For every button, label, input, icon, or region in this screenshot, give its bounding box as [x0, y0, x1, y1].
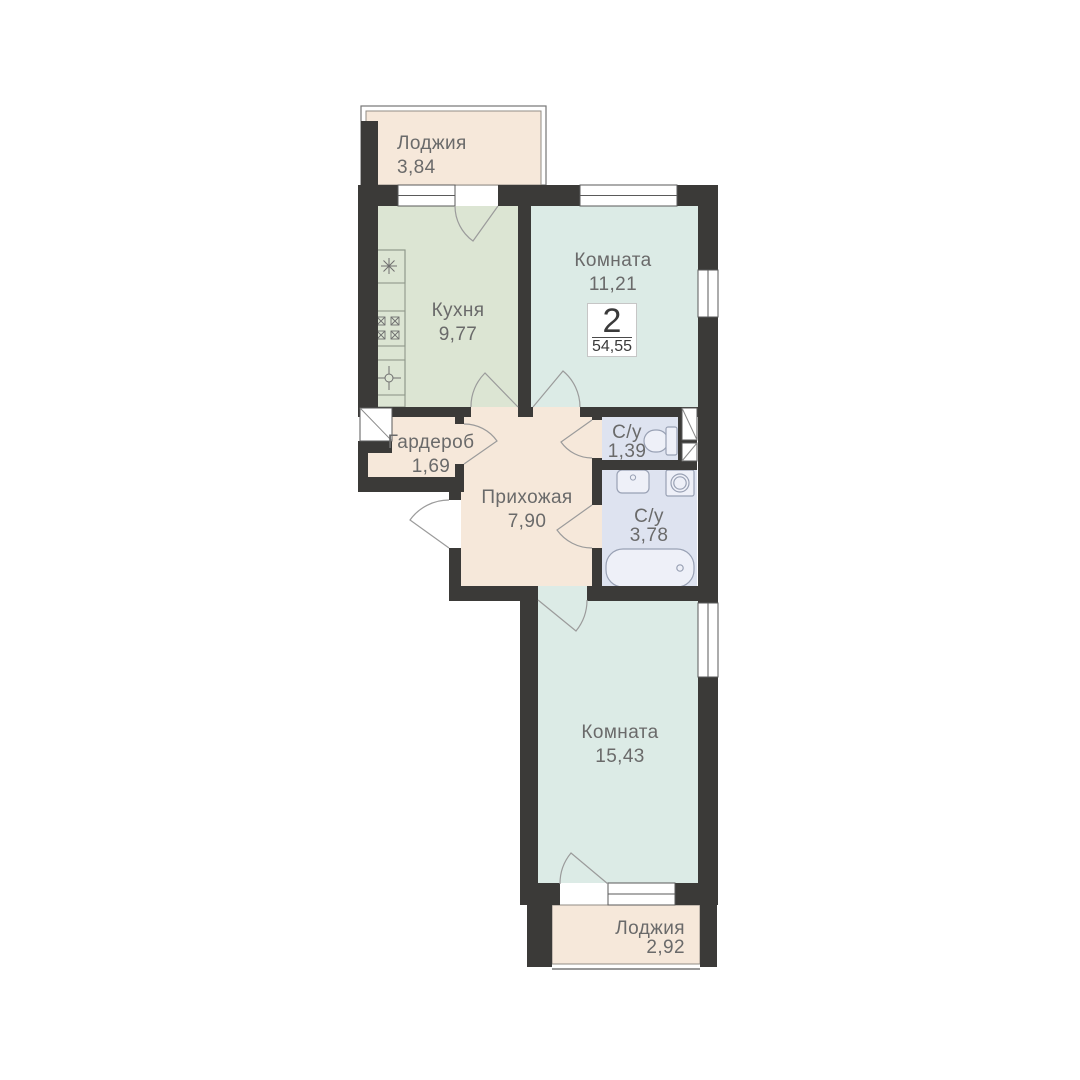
- wall-segment: [698, 677, 718, 905]
- total-area: 54,55: [588, 338, 636, 356]
- wall-segment: [520, 883, 560, 905]
- room-1-door-opening: [533, 407, 580, 417]
- label-loggia-top: Лоджия 3,84: [397, 132, 467, 180]
- washbasin-fixture: [617, 470, 649, 493]
- label-kitchen: Кухня 9,77: [432, 299, 485, 347]
- room-area: 1,39: [608, 442, 647, 461]
- wall-segment: [698, 185, 718, 270]
- room-name: Комната: [574, 249, 651, 273]
- wall-segment: [700, 905, 717, 967]
- wall-segment: [527, 905, 552, 967]
- room-area: 1,69: [388, 455, 475, 479]
- room-area: 9,77: [432, 323, 485, 347]
- room-area: 11,21: [574, 273, 651, 297]
- wall-segment: [520, 586, 538, 905]
- floor-plan-drawing: [0, 0, 1080, 1080]
- room-name: С/у: [608, 423, 647, 442]
- door-arc-entrance: [410, 500, 449, 548]
- wc-2-door-opening: [592, 505, 602, 548]
- room-area: 2,92: [615, 938, 685, 957]
- wall-segment: [518, 206, 531, 409]
- wall-segment: [518, 407, 533, 417]
- room-name: Прихожая: [481, 486, 572, 510]
- toilet-bowl-fixture: [644, 430, 668, 452]
- label-room-1: Комната 11,21: [574, 249, 651, 297]
- kitchen-door-opening: [471, 407, 518, 417]
- room-2-door-opening: [538, 586, 587, 601]
- wall-segment: [678, 408, 682, 462]
- wall-segment: [361, 121, 378, 185]
- washing-machine-drum: [674, 477, 686, 489]
- wall-segment: [358, 185, 378, 411]
- label-room-2: Комната 15,43: [581, 721, 658, 769]
- bathtub-drain: [677, 565, 683, 571]
- room-name: Гардероб: [388, 431, 475, 455]
- wall-segment: [498, 185, 580, 206]
- label-wc-2: С/у 3,78: [630, 507, 669, 545]
- wall-segment: [358, 477, 464, 492]
- room-area: 7,90: [481, 510, 572, 534]
- room-area: 15,43: [581, 745, 658, 769]
- room-area: 3,84: [397, 156, 467, 180]
- wall-segment: [449, 492, 461, 500]
- label-hallway: Прихожая 7,90: [481, 486, 572, 534]
- wall-segment: [455, 407, 464, 424]
- room-name: Лоджия: [397, 132, 467, 156]
- room-area: 3,78: [630, 526, 669, 545]
- wc-1-door-opening: [592, 420, 602, 458]
- label-wardrobe: Гардероб 1,69: [388, 431, 475, 479]
- wall-segment: [675, 883, 718, 905]
- rooms-count: 2: [588, 305, 636, 337]
- room-name: Комната: [581, 721, 658, 745]
- room-name: Лоджия: [615, 919, 685, 938]
- wall-segment: [592, 407, 602, 420]
- floor-plan-canvas: Лоджия 3,84 Кухня 9,77 Комната 11,21 Гар…: [0, 0, 1080, 1080]
- apartment-info-badge: 2 54,55: [587, 303, 637, 357]
- room-name: С/у: [630, 507, 669, 526]
- label-loggia-bottom: Лоджия 2,92: [615, 919, 685, 957]
- toilet-tank-fixture: [666, 427, 677, 455]
- room-name: Кухня: [432, 299, 485, 323]
- wall-segment: [698, 317, 718, 603]
- label-wc-1: С/у 1,39: [608, 423, 647, 461]
